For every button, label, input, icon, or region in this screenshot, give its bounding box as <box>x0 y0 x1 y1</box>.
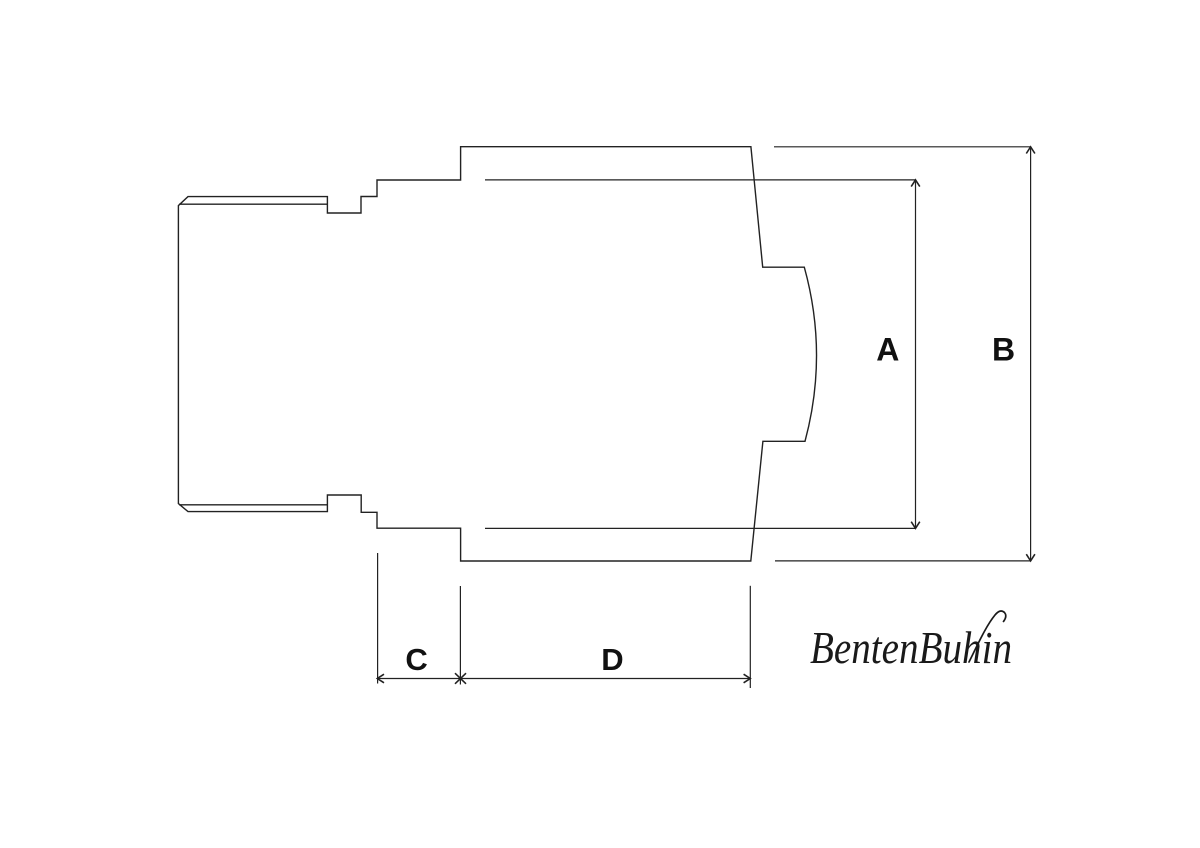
svg-text:D: D <box>601 642 623 677</box>
svg-text:B: B <box>992 332 1015 368</box>
svg-text:A: A <box>876 332 899 368</box>
svg-text:BentenBuhin: BentenBuhin <box>810 622 1012 673</box>
svg-text:C: C <box>405 642 427 677</box>
